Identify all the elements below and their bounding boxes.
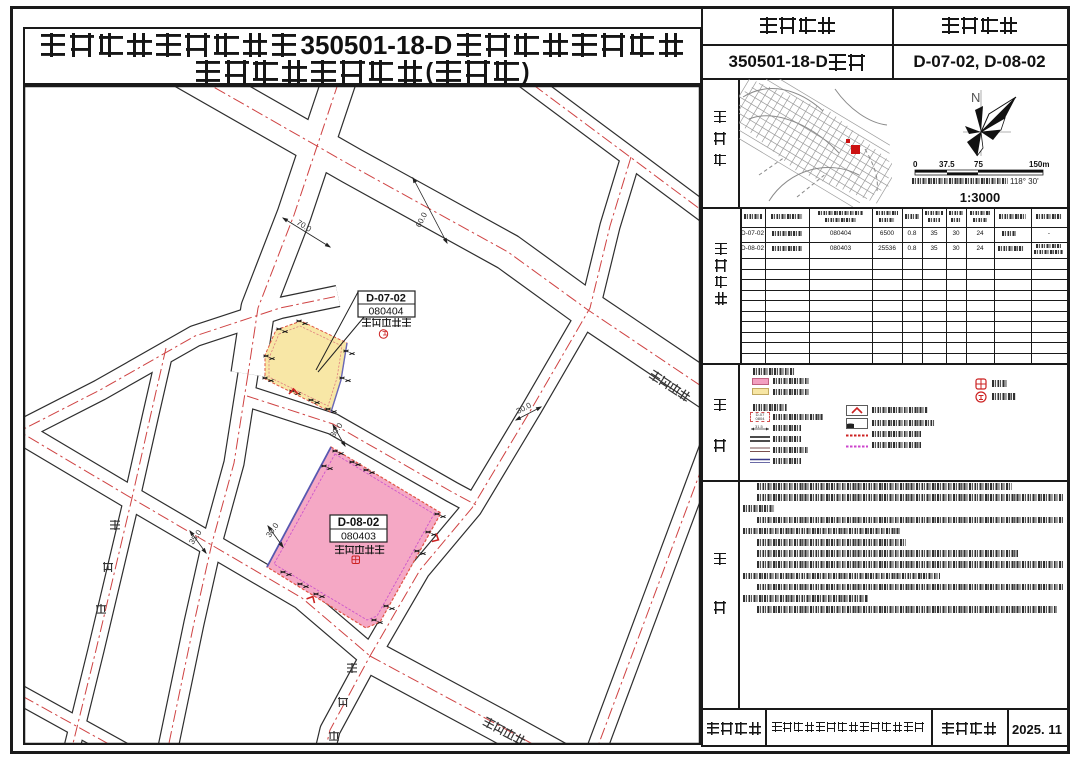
svg-text:D-08-02: D-08-02 bbox=[338, 517, 380, 529]
svg-text:37.5: 37.5 bbox=[939, 160, 955, 169]
svg-text:D-07-02: D-07-02 bbox=[366, 293, 406, 305]
svg-text:75: 75 bbox=[974, 160, 983, 169]
svg-text:150m: 150m bbox=[1029, 160, 1049, 169]
svg-text:080404: 080404 bbox=[368, 306, 403, 318]
svg-text:0: 0 bbox=[913, 160, 918, 169]
svg-text:N: N bbox=[971, 90, 980, 105]
svg-text:31.5: 31.5 bbox=[755, 424, 764, 429]
svg-text:080403: 080403 bbox=[341, 531, 376, 543]
